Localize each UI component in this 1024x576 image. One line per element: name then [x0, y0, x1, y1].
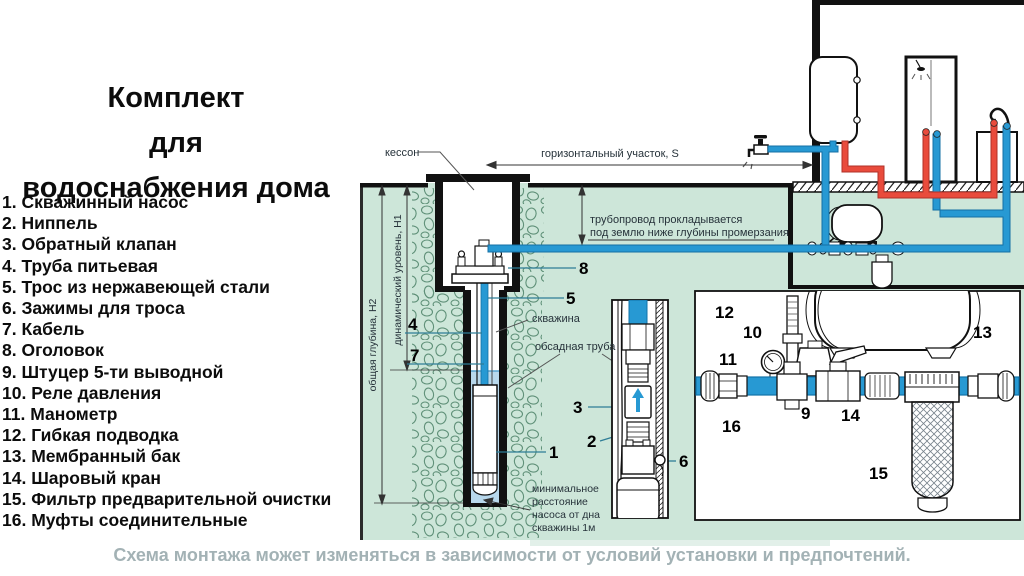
- parts-list-item: 4. Труба питьевая: [2, 256, 360, 277]
- shower-cabin: [906, 57, 956, 182]
- parts-list-item: 14. Шаровый кран: [2, 468, 360, 489]
- callout-5: 5: [566, 289, 575, 308]
- coupling-right: [968, 371, 1014, 401]
- callout-15: 15: [869, 464, 888, 483]
- parts-list-item: 2. Ниппель: [2, 213, 360, 234]
- label-min-distance-2: расстояние: [532, 496, 588, 508]
- parts-list-item: 1. Скважинный насос: [2, 192, 360, 213]
- submersible-pump: [473, 385, 497, 495]
- parts-list-item: 7. Кабель: [2, 319, 360, 340]
- label-well: скважина: [532, 313, 581, 325]
- page-title: Комплект для водоснабжения дома: [0, 76, 352, 211]
- label-pipeline-note-1: трубопровод прокладывается: [590, 214, 742, 226]
- surface-equipment-panel: [695, 270, 1020, 520]
- parts-list-item: 8. Оголовок: [2, 340, 360, 361]
- basement-filter: [872, 262, 892, 288]
- parts-list: 1. Скважинный насос 2. Ниппель 3. Обратн…: [2, 192, 360, 531]
- shower-cold-valve: [934, 131, 941, 138]
- callout-1: 1: [549, 443, 558, 462]
- shower-hot-valve: [923, 129, 930, 136]
- sink-cold-valve: [1004, 123, 1011, 130]
- callout-4: 4: [408, 315, 418, 334]
- nipple: [627, 422, 649, 442]
- callout-10: 10: [743, 323, 762, 342]
- label-min-distance-3: насоса от дна: [532, 509, 600, 521]
- parts-list-item: 9. Штуцер 5-ти выводной: [2, 362, 360, 383]
- check-valve: [625, 386, 651, 418]
- shower-head-icon: [917, 67, 925, 71]
- parts-list-item: 15. Фильтр предварительной очистки: [2, 489, 360, 510]
- coupling-left: [701, 371, 747, 401]
- callout-2: 2: [587, 432, 596, 451]
- callout-14: 14: [841, 406, 860, 425]
- callout-12: 12: [715, 303, 734, 322]
- pump-detail-panel: [612, 300, 668, 522]
- installation-diagram: кессон горизонтальный участок, S трубопр…: [360, 0, 1024, 576]
- parts-list-item: 16. Муфты соединительные: [2, 510, 360, 531]
- title-line: Комплект: [0, 76, 352, 121]
- sink-hot-valve: [991, 120, 998, 127]
- parts-list-item: 3. Обратный клапан: [2, 234, 360, 255]
- callout-8: 8: [579, 259, 588, 278]
- label-min-distance-1: минимальное: [532, 483, 599, 495]
- label-horizontal-section: горизонтальный участок, S: [541, 148, 679, 160]
- callout-9: 9: [801, 404, 810, 423]
- label-pipeline-note-2: под землю ниже глубины промерзания: [590, 227, 789, 239]
- callout-6: 6: [679, 452, 688, 471]
- parts-list-item: 12. Гибкая подводка: [2, 425, 360, 446]
- parts-list-item: 10. Реле давления: [2, 383, 360, 404]
- water-heater: [810, 57, 860, 143]
- label-min-distance-4: скважины 1м: [532, 522, 595, 534]
- parts-list-item: 6. Зажимы для троса: [2, 298, 360, 319]
- parts-list-item: 11. Манометр: [2, 404, 360, 425]
- page: Комплект для водоснабжения дома 1. Скваж…: [0, 0, 1024, 576]
- callout-13: 13: [973, 323, 992, 342]
- callout-16: 16: [722, 417, 741, 436]
- outdoor-tap: [743, 135, 768, 169]
- callout-11: 11: [719, 350, 737, 369]
- footer-caption: Схема монтажа может изменяться в зависим…: [0, 545, 1024, 566]
- pipe-connector: [865, 373, 899, 399]
- parts-list-item: 5. Трос из нержавеющей стали: [2, 277, 360, 298]
- label-total-depth: общая глубина, Н2: [367, 298, 379, 391]
- label-casing-pipe: обсадная труба: [535, 341, 616, 353]
- label-dynamic-level: динамический уровень, Н1: [392, 214, 404, 345]
- title-line: для: [0, 121, 352, 166]
- callout-3: 3: [573, 398, 582, 417]
- callout-7: 7: [410, 346, 419, 365]
- parts-list-item: 13. Мембранный бак: [2, 446, 360, 467]
- parts-list-panel: Комплект для водоснабжения дома 1. Скваж…: [0, 0, 360, 576]
- label-caisson: кессон: [385, 147, 419, 159]
